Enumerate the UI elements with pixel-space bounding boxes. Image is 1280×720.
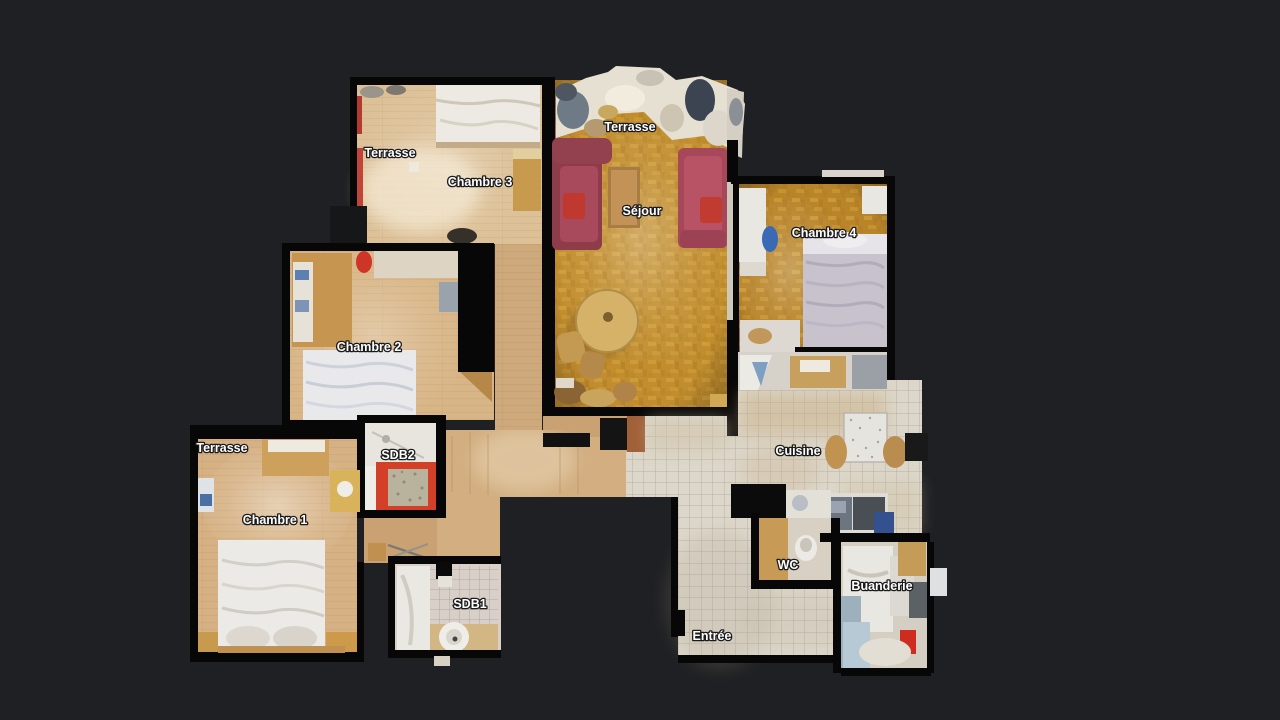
- svg-text:Terrasse: Terrasse: [196, 441, 247, 455]
- svg-text:Chambre 2: Chambre 2: [337, 340, 402, 354]
- svg-text:Cuisine: Cuisine: [775, 444, 820, 458]
- svg-text:Terrasse: Terrasse: [604, 120, 655, 134]
- svg-text:WC: WC: [778, 558, 799, 572]
- svg-text:Chambre 1: Chambre 1: [243, 513, 308, 527]
- svg-text:Séjour: Séjour: [623, 204, 662, 218]
- svg-text:Entrée: Entrée: [693, 629, 732, 643]
- svg-text:Chambre 3: Chambre 3: [448, 175, 513, 189]
- svg-text:Terrasse: Terrasse: [364, 146, 415, 160]
- svg-text:SDB2: SDB2: [381, 448, 414, 462]
- svg-text:SDB1: SDB1: [453, 597, 486, 611]
- svg-text:Chambre 4: Chambre 4: [792, 226, 857, 240]
- svg-text:Buanderie: Buanderie: [851, 579, 912, 593]
